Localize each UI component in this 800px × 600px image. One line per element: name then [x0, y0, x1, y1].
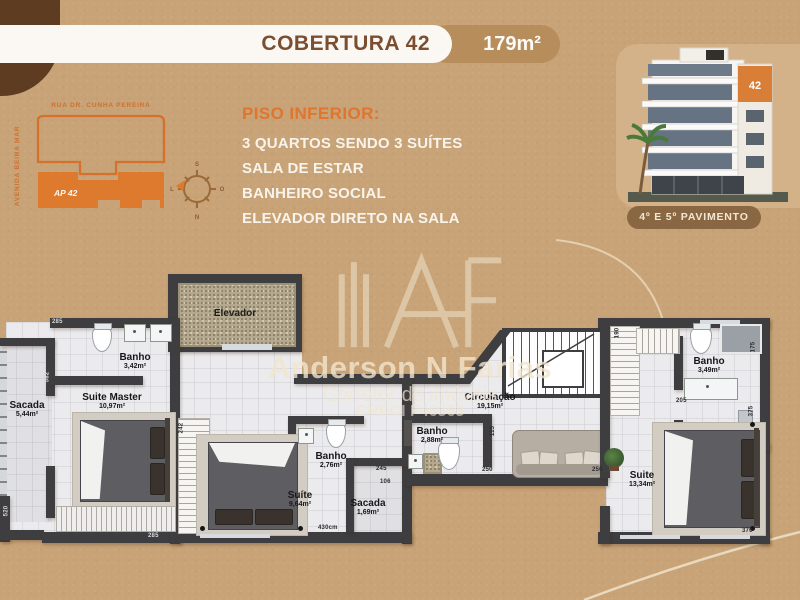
stair-landing: [542, 350, 584, 388]
building-illustration: 42: [622, 46, 794, 206]
room-label-suite-meio: Suíte 9,64m²: [268, 490, 332, 509]
floor-caption-pill: 4º E 5º PAVIMENTO: [627, 206, 761, 229]
wall: [294, 374, 470, 384]
room-label-banho-social: Banho 2,88m²: [400, 426, 464, 445]
dim-label: 582: [44, 372, 50, 383]
window: [620, 535, 680, 539]
room-label-elevador: Elevador: [178, 308, 292, 319]
room-label-suite-master: Suite Master 10,97m²: [62, 392, 162, 411]
compass-bottom: N: [195, 215, 199, 221]
feature-line-2: SALA DE ESTAR: [242, 156, 462, 181]
room-label-banho-dir: Banho 3,49m²: [678, 356, 740, 375]
bed-suite-master: [80, 420, 168, 502]
feature-line-1: 3 QUARTOS SENDO 3 SUÍTES: [242, 131, 462, 156]
wall: [410, 414, 492, 423]
dim-label: 250: [592, 467, 603, 473]
dim-label: 205: [676, 398, 687, 404]
dim-label: 242: [178, 423, 184, 434]
unit-label: AP 42: [53, 188, 78, 198]
bed-suite-middle: [208, 442, 298, 530]
headboard: [754, 428, 759, 526]
sofa-pillow: [538, 451, 558, 470]
dim-label: 370: [742, 528, 753, 534]
sofa-pillow: [564, 451, 584, 470]
window: [200, 534, 270, 538]
room-label-banho-master: Banho 3,42m²: [100, 352, 170, 371]
bed-sheet: [209, 443, 295, 467]
compass-right: O: [220, 187, 225, 193]
vanity-sink-icon: [150, 324, 172, 342]
pillow: [255, 509, 293, 525]
dim-label: 245: [376, 466, 387, 472]
window: [700, 320, 740, 324]
wardrobe: [56, 506, 176, 532]
room-label-sacada-meio: Sacada 1,69m²: [338, 498, 398, 517]
vanity-sink-icon: [124, 324, 146, 342]
dim-label: 375: [748, 406, 754, 417]
dim-label: 190: [614, 328, 620, 339]
pillow: [215, 509, 253, 525]
elevator-door: [222, 344, 272, 350]
bed-sheet: [81, 421, 105, 499]
lot-outline: [38, 116, 164, 174]
room-label-circulacao: Circulação 19,15m²: [448, 392, 532, 411]
dim-label: 430cm: [318, 525, 338, 531]
dim-label: 115: [490, 426, 496, 436]
dim-label: 175: [750, 342, 756, 353]
wall: [50, 376, 143, 385]
room-label-sacada-left: Sacada 5,44m²: [2, 400, 52, 419]
room-label-banho-meio: Banho 2,76m²: [300, 451, 362, 470]
bed-suite-right: [664, 430, 760, 528]
closet: [636, 328, 680, 354]
window: [700, 535, 750, 539]
agent-monogram-icon: [318, 250, 518, 354]
site-map: RUA DR. CUNHA PEREIRA AVENIDA BEIRA MAR …: [8, 92, 232, 226]
wall: [46, 338, 55, 396]
wall: [46, 466, 55, 518]
compass-rose-icon: [178, 170, 216, 208]
sofa-pillow: [520, 450, 541, 469]
feature-line-4: ELEVADOR DIRETO NA SALA: [242, 206, 462, 231]
street-top-label: RUA DR. CUNHA PEREIRA: [51, 102, 150, 109]
feature-heading: PISO INFERIOR:: [242, 104, 462, 124]
dim-label: 250: [482, 467, 493, 473]
dim-label: 285: [148, 533, 159, 539]
lamp-icon: [750, 422, 755, 427]
area-badge-text: 179m²: [464, 25, 560, 63]
wall: [42, 532, 182, 543]
wall: [288, 416, 364, 424]
dim-label: 520: [3, 506, 9, 517]
feature-line-3: BANHEIRO SOCIAL: [242, 181, 462, 206]
room-label-suite-dir: Suite 13,34m²: [608, 470, 676, 489]
pillow: [150, 463, 165, 495]
wall: [0, 530, 44, 540]
page-title: COBERTURA 42: [261, 25, 430, 63]
flyer-canvas: 179m² COBERTURA 42 RUA DR. CUNHA PEREIRA…: [0, 0, 800, 600]
sink-icon: [408, 454, 423, 469]
vanity-counter: [684, 378, 738, 400]
lamp-icon: [298, 526, 303, 531]
plant-icon: [604, 448, 624, 468]
compass-top: S: [195, 162, 199, 168]
lamp-icon: [200, 526, 205, 531]
dim-label: 285: [52, 319, 63, 325]
wall: [600, 506, 610, 544]
headboard: [165, 418, 170, 502]
feature-list: PISO INFERIOR: 3 QUARTOS SENDO 3 SUÍTES …: [242, 104, 462, 231]
building-unit-number: 42: [749, 80, 761, 92]
sink-icon: [298, 428, 314, 444]
title-banner: COBERTURA 42: [0, 25, 452, 63]
pillow: [150, 427, 165, 459]
dim-label: 106: [380, 479, 391, 485]
compass-left: L: [170, 187, 174, 193]
street-left-label: AVENIDA BEIRA MAR: [14, 126, 21, 207]
